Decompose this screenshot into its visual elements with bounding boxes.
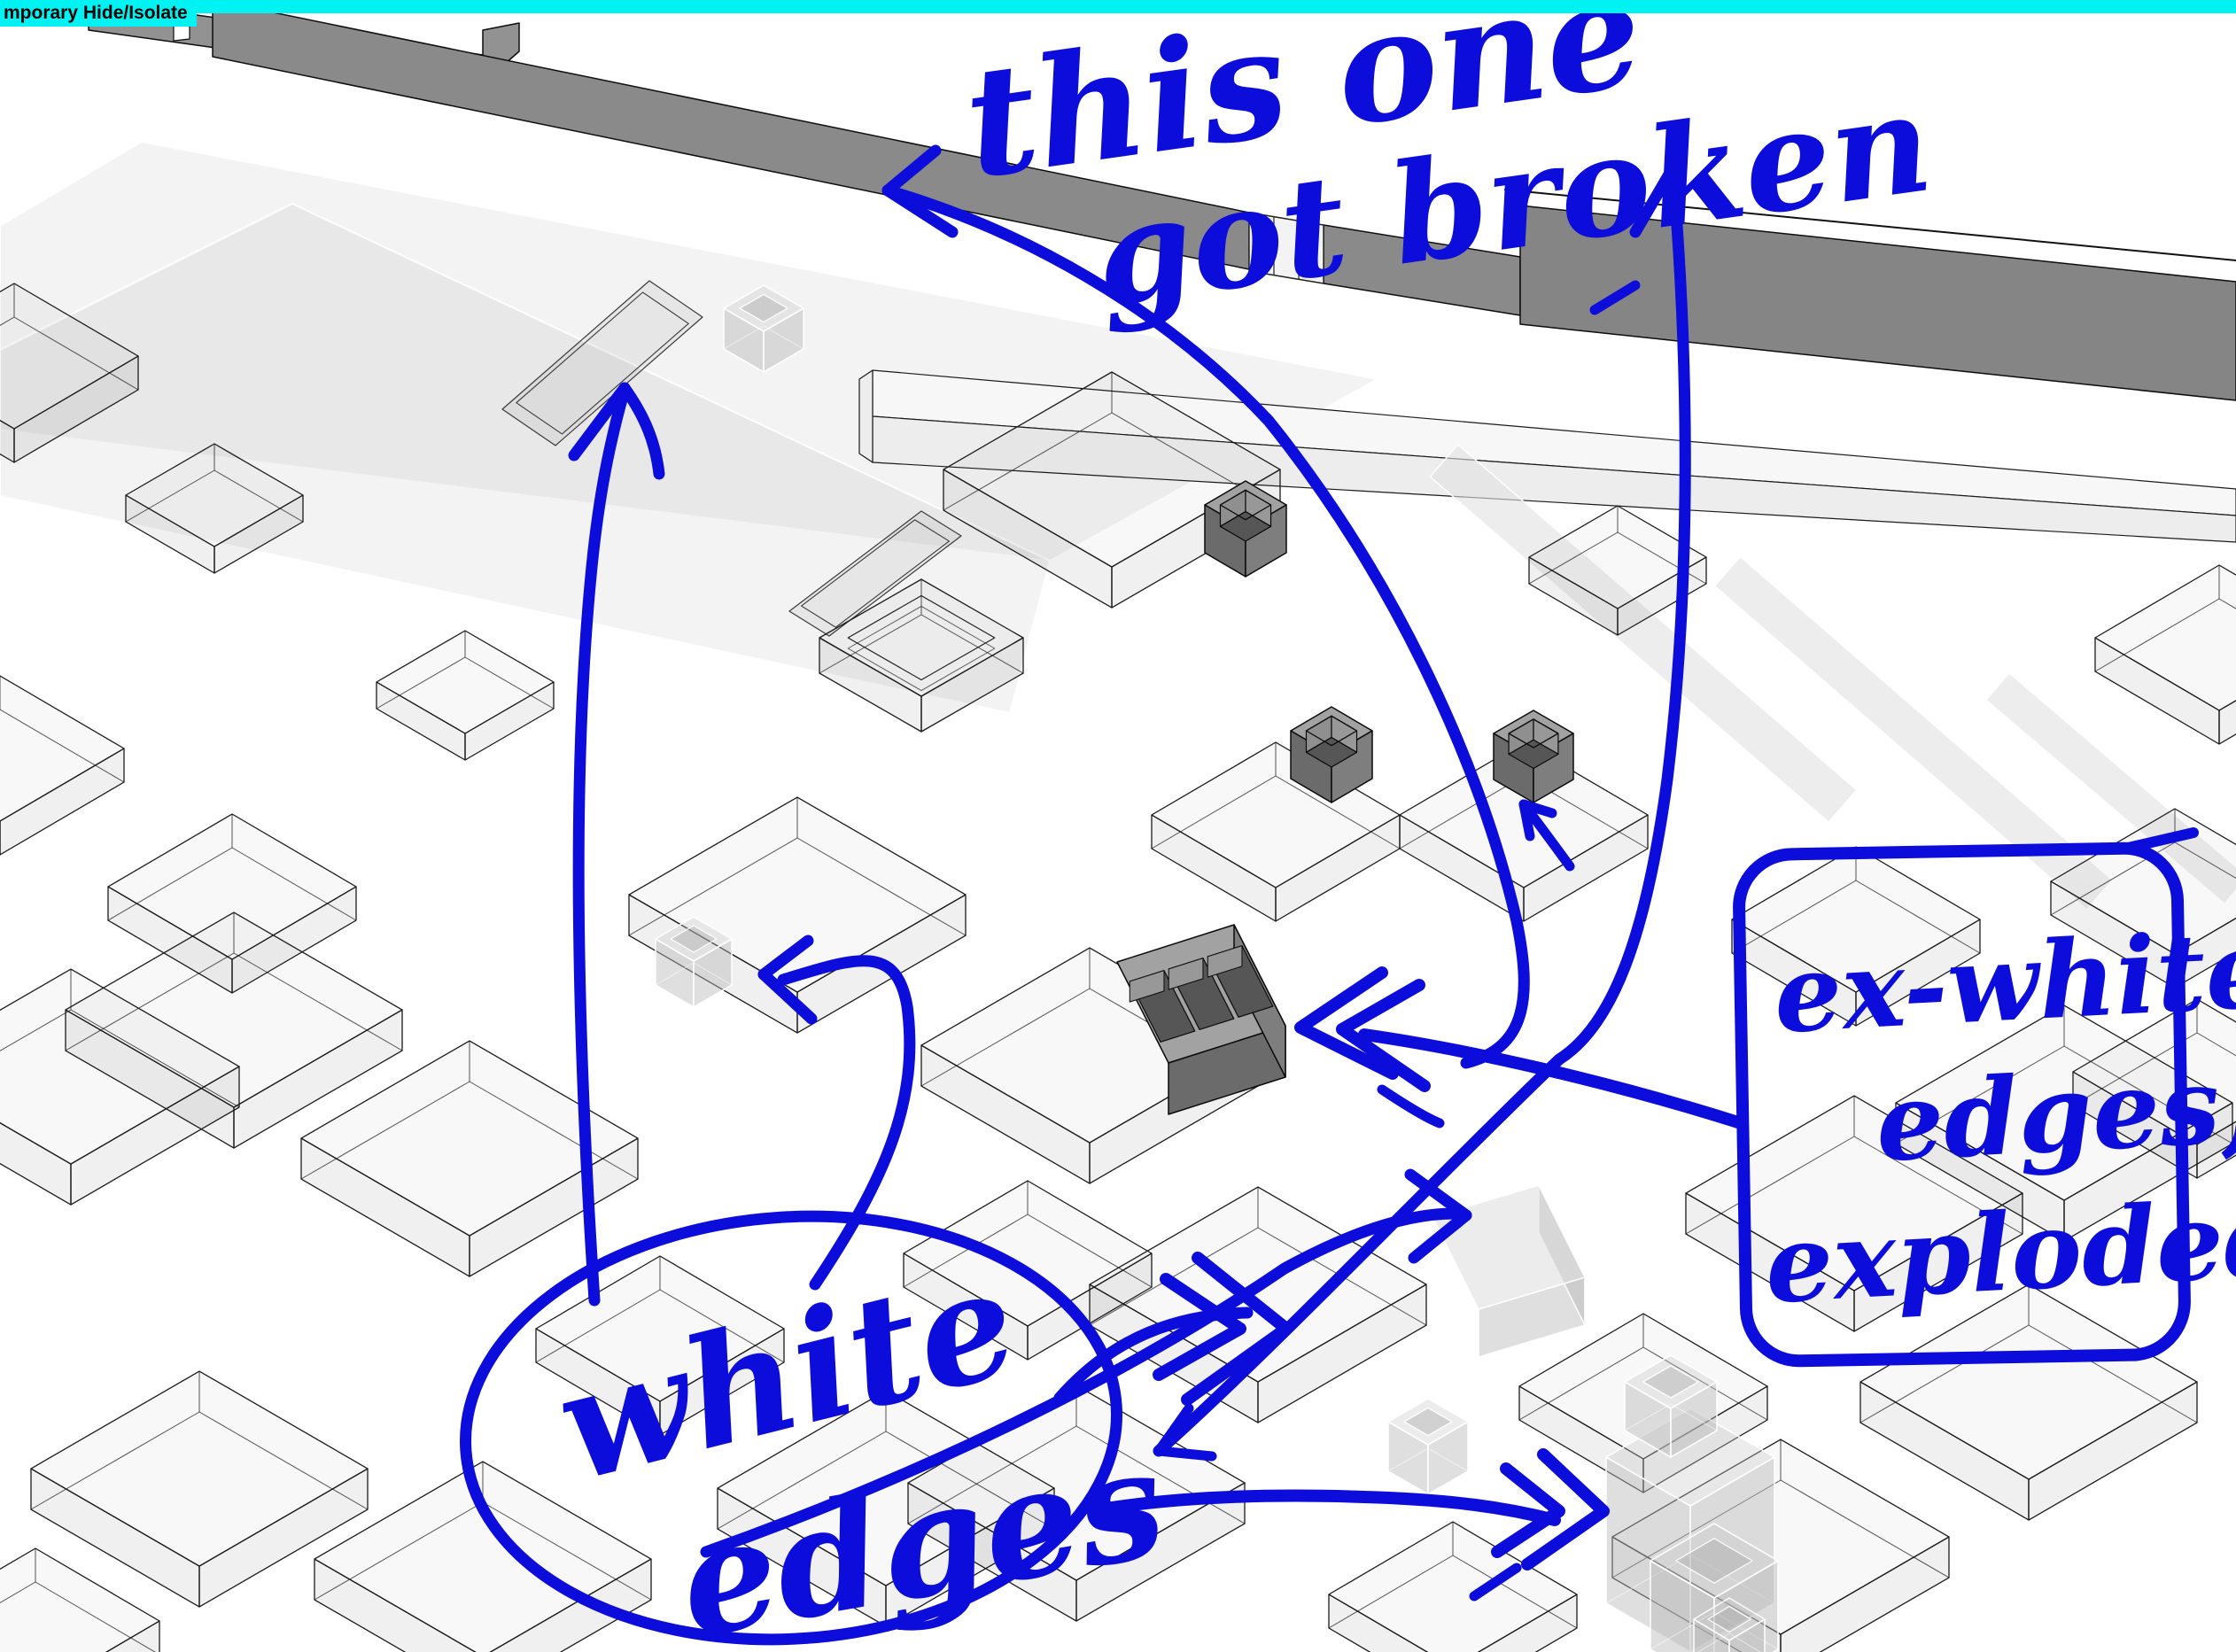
ink-text: ex-white bbox=[1771, 907, 2236, 1058]
model-canvas[interactable]: this onegot brokenwhiteedgesex-whiteedge… bbox=[0, 0, 2236, 1652]
ink-stroke bbox=[1527, 1454, 1603, 1564]
temporary-hide-isolate-border bbox=[0, 0, 2236, 13]
revit-3d-view: this onegot brokenwhiteedgesex-whiteedge… bbox=[0, 0, 2236, 1652]
ink-stroke bbox=[1524, 804, 1530, 836]
ink-text: edges, bbox=[1873, 1042, 2236, 1186]
temporary-hide-isolate-label: mporary Hide/Isolate bbox=[0, 0, 197, 27]
ink-stroke bbox=[1382, 1090, 1440, 1123]
ink-stroke bbox=[1159, 1451, 1212, 1456]
